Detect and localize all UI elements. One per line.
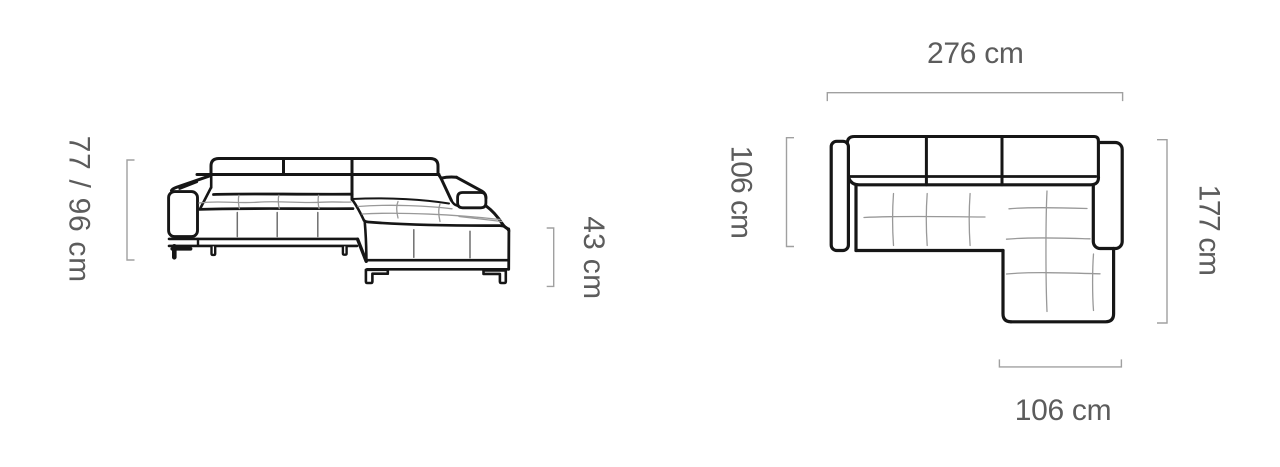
svg-text:106 cm: 106 cm xyxy=(725,146,758,238)
svg-text:276 cm: 276 cm xyxy=(927,37,1024,70)
svg-text:43 cm: 43 cm xyxy=(577,216,610,299)
svg-text:177 cm: 177 cm xyxy=(1193,185,1226,275)
svg-text:77 / 96 cm: 77 / 96 cm xyxy=(63,136,96,283)
svg-text:106 cm: 106 cm xyxy=(1015,394,1112,427)
